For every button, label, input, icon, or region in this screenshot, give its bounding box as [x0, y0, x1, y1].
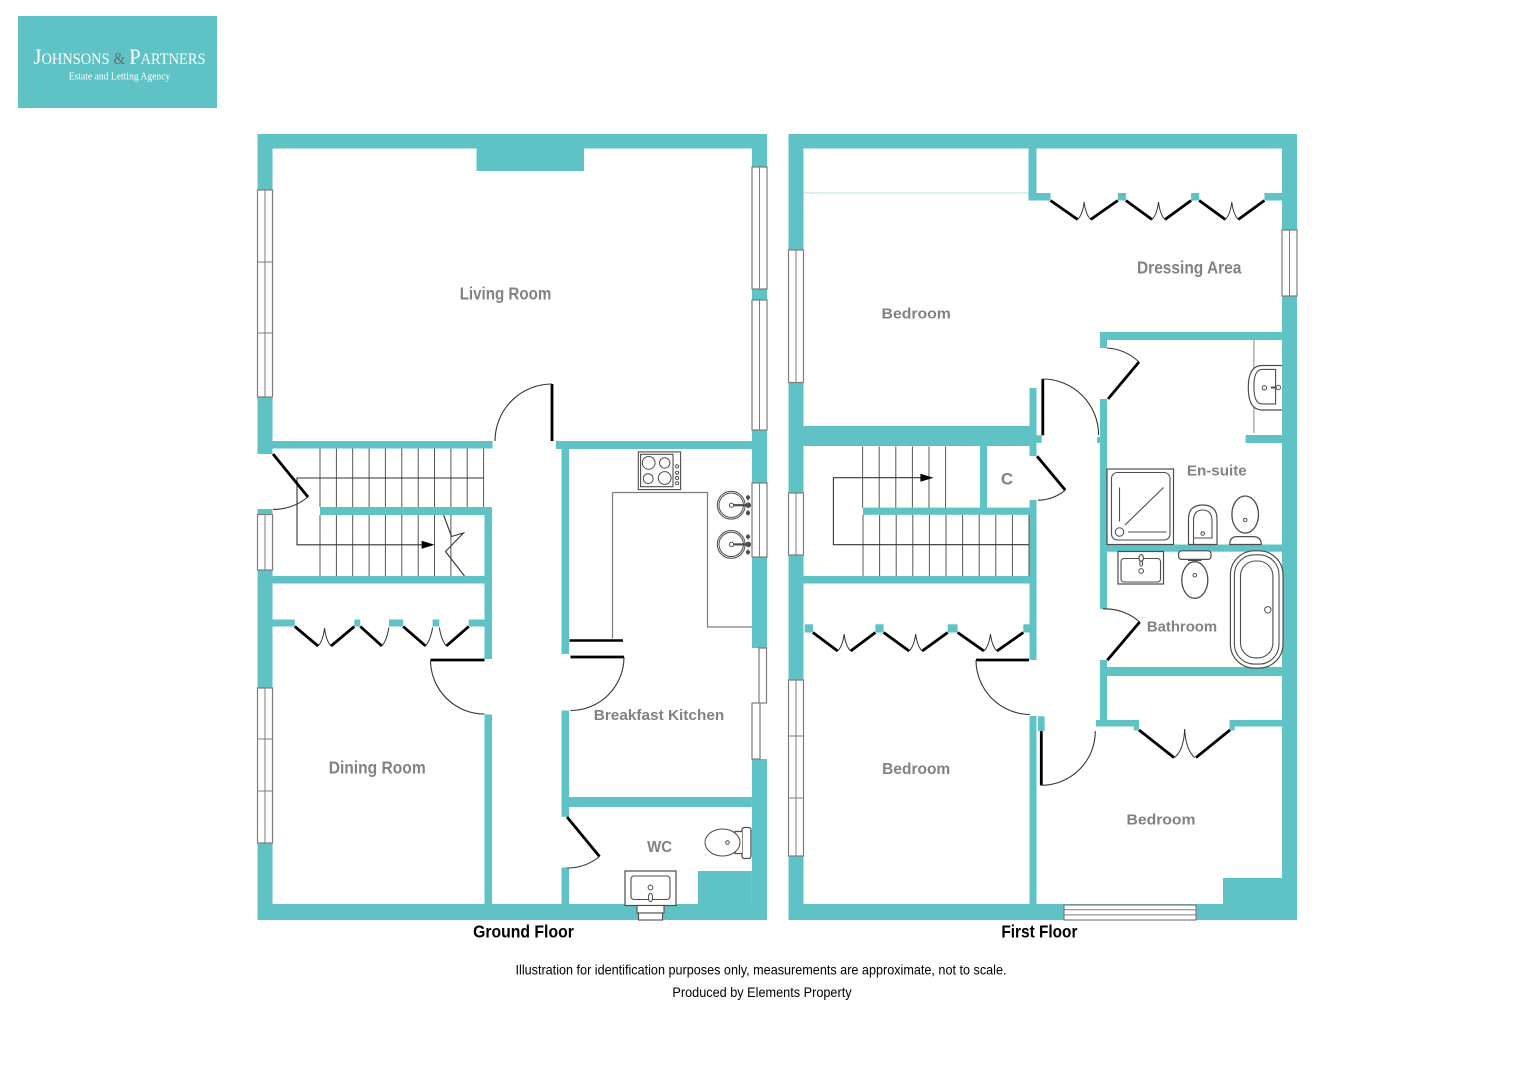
svg-text:C: C — [1001, 469, 1013, 488]
svg-text:Bedroom: Bedroom — [1127, 812, 1196, 829]
svg-text:Bedroom: Bedroom — [882, 306, 951, 323]
svg-text:Illustration for identificatio: Illustration for identification purposes… — [516, 962, 1007, 978]
svg-text:Breakfast Kitchen: Breakfast Kitchen — [594, 708, 725, 724]
svg-text:Living Room: Living Room — [460, 285, 552, 304]
svg-text:Estate and Letting Agency: Estate and Letting Agency — [69, 72, 171, 83]
svg-text:Dining Room: Dining Room — [329, 758, 426, 778]
svg-text:Produced by Elements Property: Produced by Elements Property — [672, 984, 851, 1000]
svg-text:Bedroom: Bedroom — [882, 761, 950, 778]
svg-text:Dressing Area: Dressing Area — [1137, 257, 1241, 277]
svg-text:First Floor: First Floor — [1001, 922, 1077, 941]
svg-text:WC: WC — [647, 839, 672, 856]
svg-text:Ground Floor: Ground Floor — [473, 922, 574, 941]
svg-text:Bathroom: Bathroom — [1147, 619, 1217, 636]
svg-text:En-suite: En-suite — [1187, 464, 1247, 480]
